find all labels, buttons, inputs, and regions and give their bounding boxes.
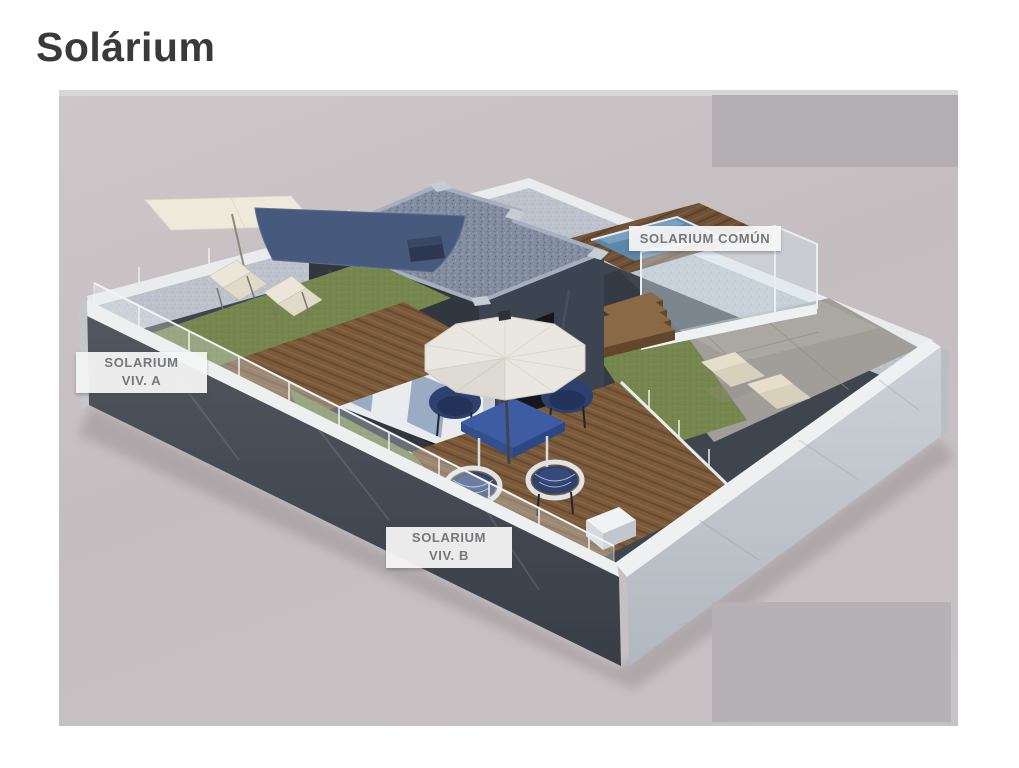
gray-rectangle-top-right — [712, 95, 958, 167]
page-title: Solárium — [36, 24, 215, 71]
label-solarium-comun: SOLARIUM COMÚN — [629, 226, 781, 251]
label-solarium-viv-b: SOLARIUM VIV. B — [386, 527, 512, 568]
label-solarium-viv-a: SOLARIUM VIV. A — [76, 352, 207, 393]
label-text: VIV. A — [76, 372, 207, 390]
gray-rectangle-bottom-right — [712, 602, 951, 722]
render-figure: SOLARIUM COMÚN SOLARIUM VIV. A SOLARIUM … — [59, 90, 958, 726]
label-text: SOLARIUM — [76, 354, 207, 372]
slide-page: Solárium — [0, 0, 1019, 768]
label-text: SOLARIUM COMÚN — [629, 226, 781, 251]
label-text: VIV. B — [386, 547, 512, 565]
label-text: SOLARIUM — [386, 529, 512, 547]
pouf — [407, 236, 445, 262]
